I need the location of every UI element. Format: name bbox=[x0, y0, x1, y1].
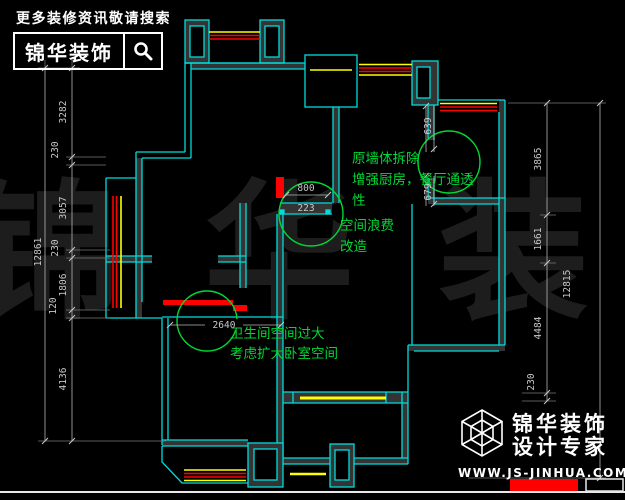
dim-door-return: 223 bbox=[297, 203, 314, 214]
footer-logo: 锦华装饰 设计专家 WWW.JS-JINHUA.COM bbox=[458, 408, 622, 480]
dim-left-5: 1806 bbox=[58, 273, 69, 296]
annotation-circles bbox=[177, 131, 480, 351]
waste-note-line1: 空间浪费 bbox=[340, 218, 394, 234]
wall-fills bbox=[106, 63, 505, 464]
dim-left-total: 12861 bbox=[33, 237, 44, 266]
logo-search-box: 锦华装饰 bbox=[13, 32, 163, 70]
footer-brand-line1: 锦华装饰 bbox=[512, 412, 608, 435]
dim-door-width: 800 bbox=[297, 183, 314, 194]
dim-right-1: 3865 bbox=[533, 148, 544, 171]
logo-tagline: 更多装修资讯敬请搜索 bbox=[16, 8, 171, 28]
header-logo: 更多装修资讯敬请搜索 锦华装饰 bbox=[13, 6, 171, 70]
annotation-texts: 原墙体拆除 增强厨房，餐厅通透 性 空间浪费 改造 卫生间空间过大 考虑扩大卧室… bbox=[230, 151, 474, 362]
dim-left-2: 230 bbox=[50, 141, 61, 158]
dim-right-2: 1661 bbox=[533, 227, 544, 250]
footer-website: WWW.JS-JINHUA.COM bbox=[458, 466, 622, 480]
waste-note-line2: 改造 bbox=[340, 239, 367, 255]
kitchen-note-line2: 增强厨房，餐厅通透 bbox=[352, 172, 474, 188]
dim-left-3: 3057 bbox=[58, 197, 69, 220]
bath-note-line2: 考虑扩大卧室空间 bbox=[230, 345, 338, 362]
search-icon bbox=[123, 34, 161, 68]
logo-brand-name: 锦华装饰 bbox=[15, 34, 123, 68]
walls bbox=[106, 20, 505, 487]
cad-drawing-page: 锦 华 装 饰 bbox=[0, 0, 625, 500]
dim-left-1: 3282 bbox=[58, 101, 69, 124]
dim-left-4: 230 bbox=[50, 239, 61, 256]
dim-left-6: 120 bbox=[48, 297, 59, 314]
cube-logo-icon bbox=[458, 408, 506, 462]
dim-opening-upper: 639 bbox=[423, 117, 434, 134]
kitchen-note-line3: 性 bbox=[352, 193, 366, 209]
dim-left-7: 4136 bbox=[58, 367, 69, 390]
dim-right-total: 12815 bbox=[562, 270, 573, 299]
footer-brand-line2: 设计专家 bbox=[512, 435, 608, 458]
bottom-border bbox=[0, 479, 625, 493]
dim-right-3: 4484 bbox=[533, 316, 544, 339]
removed-wall-marks bbox=[163, 177, 284, 311]
dim-right-4: 230 bbox=[526, 373, 537, 390]
bath-note-line1: 卫生间空间过大 bbox=[230, 326, 325, 342]
footer-outline-block bbox=[586, 479, 623, 491]
kitchen-note-line1: 原墙体拆除 bbox=[352, 151, 420, 167]
footer-red-block bbox=[510, 479, 578, 491]
